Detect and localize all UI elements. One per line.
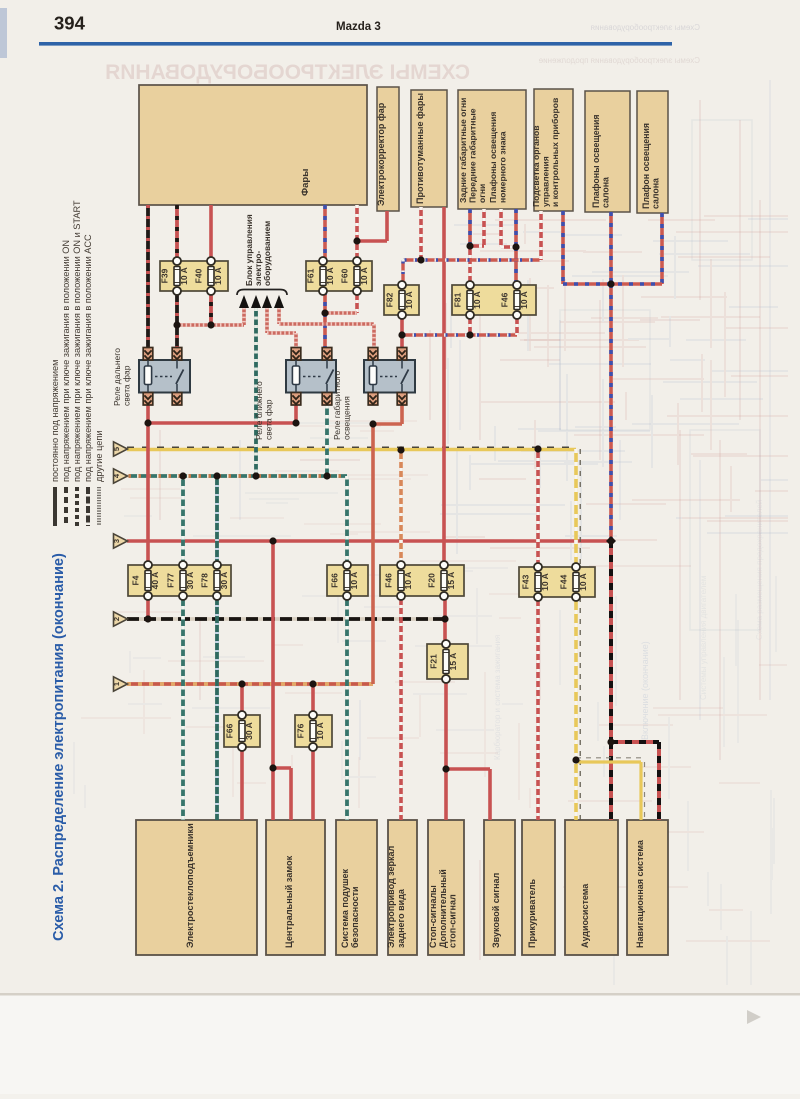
svg-text:стоп-сигнал: стоп-сигнал [448,894,458,948]
svg-text:F81: F81 [453,292,463,307]
svg-text:и контрольных приборов: и контрольных приборов [550,98,560,207]
svg-text:10 A: 10 A [349,572,359,590]
svg-text:1: 1 [112,682,121,686]
svg-text:10 A: 10 A [578,573,588,591]
svg-text:СХЕМЫ ЭЛЕКТРООБОРУДОВАНИЯ: СХЕМЫ ЭЛЕКТРООБОРУДОВАНИЯ [105,61,470,84]
svg-text:Реле дальнего: Реле дальнего [112,348,122,406]
svg-text:Реле ближнего: Реле ближнего [254,381,264,440]
svg-text:F77: F77 [166,573,176,588]
svg-text:Электрокорректор фар: Электрокорректор фар [376,102,386,206]
svg-text:394: 394 [54,13,86,34]
svg-text:управления: управления [541,156,551,207]
svg-text:Звуковой сигнал: Звуковой сигнал [491,872,501,948]
svg-text:F66: F66 [225,723,235,738]
svg-text:F61: F61 [306,268,316,283]
svg-text:15 A: 15 A [446,572,456,590]
svg-text:освещения: освещения [342,396,352,440]
svg-text:Схема 2. Распределение электро: Схема 2. Распределение электропитания (о… [51,553,67,941]
svg-text:салона: салона [601,177,611,208]
svg-text:F66: F66 [330,573,340,588]
svg-text:F44: F44 [559,574,569,589]
svg-text:Аудиосистема: Аудиосистема [580,883,590,948]
svg-text:Фары: Фары [300,169,311,196]
svg-text:30 A: 30 A [185,572,195,590]
svg-text:Системы управления двигателем: Системы управления двигателем [699,576,708,700]
svg-text:10 A: 10 A [540,573,550,591]
svg-text:безопасности: безопасности [350,886,360,948]
svg-text:Включение (окончание): Включение (окончание) [640,641,650,740]
svg-text:10 A: 10 A [403,572,413,590]
svg-text:Плафон освещения: Плафон освещения [641,123,651,209]
svg-text:огни: огни [477,184,487,203]
svg-text:Электропривод зеркал: Электропривод зеркал [386,845,396,948]
svg-text:света фар: света фар [122,365,132,406]
svg-text:10 A: 10 A [519,291,529,309]
svg-text:Схема размещения предохранител: Схема размещения предохранителей [755,500,764,640]
svg-text:Электростеклоподъемники: Электростеклоподъемники [185,823,195,948]
svg-text:заднего вида: заднего вида [396,888,406,948]
svg-text:40 A: 40 A [150,572,160,590]
svg-text:30 A: 30 A [219,572,229,590]
svg-text:другие цепи: другие цепи [94,431,104,482]
svg-text:F39: F39 [160,268,170,283]
svg-text:F82: F82 [385,292,395,307]
svg-text:10 A: 10 A [179,267,189,285]
svg-text:15 A: 15 A [448,653,458,671]
svg-text:F40: F40 [194,268,204,283]
svg-text:10 A: 10 A [325,267,335,285]
svg-text:Mazda 3: Mazda 3 [336,21,381,33]
svg-text:Карбюратор и система зажигания: Карбюратор и система зажигания [493,635,502,760]
svg-text:под напряжением при ключе зажи: под напряжением при ключе зажигания в по… [72,200,82,482]
svg-text:F76: F76 [296,723,306,738]
svg-text:30 A: 30 A [244,722,254,740]
svg-text:F46: F46 [384,573,394,588]
svg-text:2: 2 [112,617,121,621]
svg-text:10 A: 10 A [315,722,325,740]
svg-text:Противотуманные фары: Противотуманные фары [415,93,425,204]
svg-text:оборудованием: оборудованием [262,221,272,286]
svg-text:F78: F78 [200,573,210,588]
svg-text:Подсветка органов: Подсветка органов [531,125,541,207]
svg-text:F21: F21 [429,654,439,669]
svg-text:под напряжением при ключе зажи: под напряжением при ключе зажигания в по… [61,240,71,482]
svg-text:F43: F43 [521,574,531,589]
svg-text:Задние габаритные огни: Задние габаритные огни [458,98,468,203]
svg-text:Схемы электрооборудования: Схемы электрооборудования [591,23,700,32]
svg-text:10 A: 10 A [213,267,223,285]
svg-text:10 A: 10 A [404,291,414,309]
svg-text:Прикуриватель: Прикуриватель [527,879,537,948]
svg-text:3: 3 [112,539,121,543]
svg-text:постоянно под напряжением: постоянно под напряжением [50,359,60,482]
svg-text:10 A: 10 A [472,291,482,309]
svg-text:F4: F4 [131,575,141,585]
svg-text:света фар: света фар [264,399,274,440]
svg-text:F60: F60 [340,268,350,283]
svg-text:Центральный замок: Центральный замок [284,855,294,948]
svg-text:5: 5 [112,447,121,451]
svg-text:Плафоны освещения: Плафоны освещения [488,112,498,203]
svg-text:F46: F46 [500,292,510,307]
svg-text:Схемы электрооборудования прод: Схемы электрооборудования продолжение [538,56,700,65]
svg-text:10 A: 10 A [359,267,369,285]
svg-text:салона: салона [651,178,661,209]
svg-text:Система подушек: Система подушек [340,868,350,948]
svg-text:Плафоны освещения: Плафоны освещения [591,114,601,208]
svg-text:Навигационная система: Навигационная система [635,839,645,948]
svg-text:номерного знака: номерного знака [498,131,508,203]
svg-text:Стоп-сигналы: Стоп-сигналы [428,885,438,948]
svg-text:Передние габаритные: Передние габаритные [468,108,478,203]
svg-text:под напряжением при ключе зажи: под напряжением при ключе зажигания в по… [83,234,93,482]
svg-text:Реле габаритного: Реле габаритного [332,370,342,440]
svg-text:F20: F20 [427,573,437,588]
svg-text:Дополнительный: Дополнительный [438,869,448,948]
